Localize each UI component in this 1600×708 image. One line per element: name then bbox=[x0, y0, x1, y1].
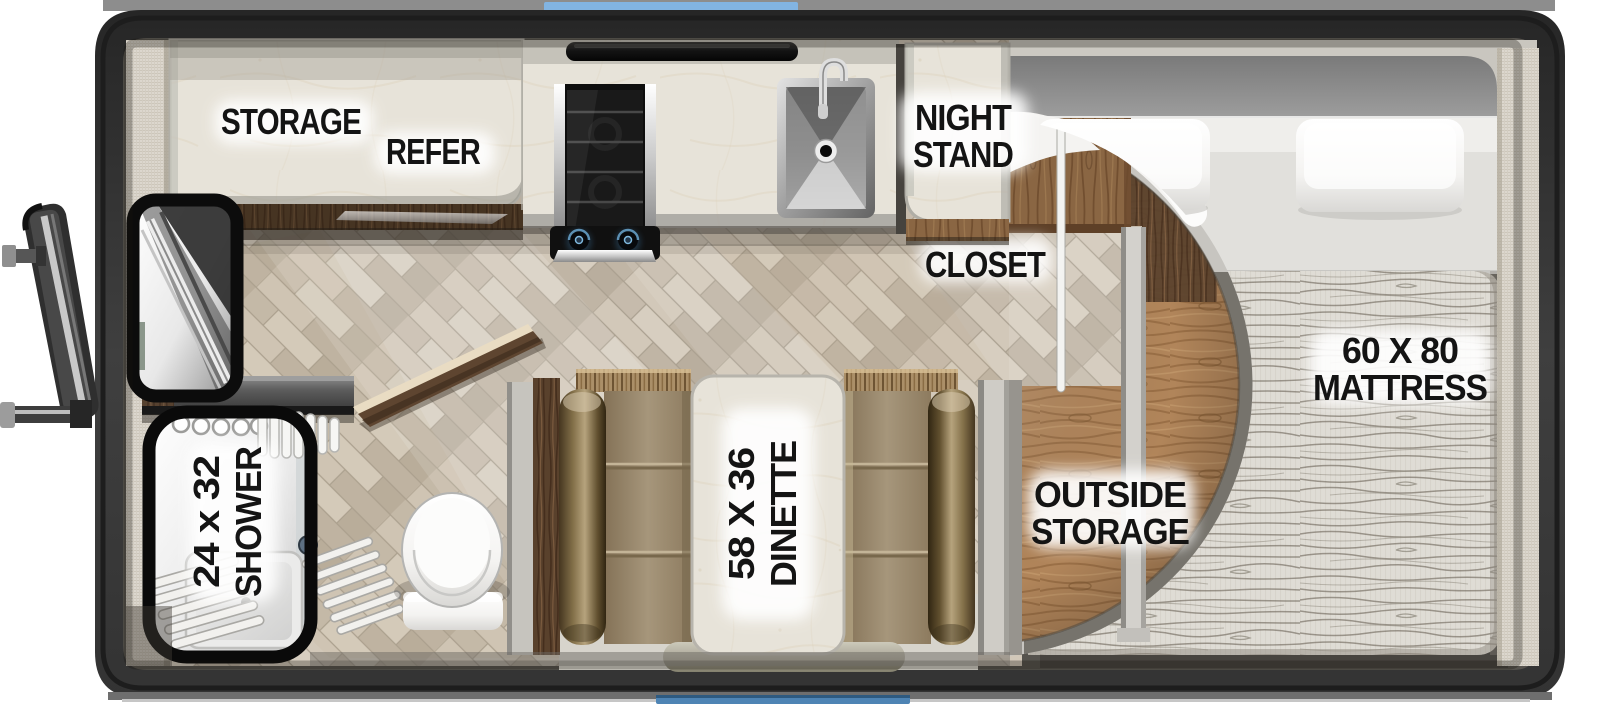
svg-text:24 x 32: 24 x 32 bbox=[186, 456, 227, 588]
svg-text:MATTRESS: MATTRESS bbox=[1313, 367, 1487, 408]
svg-text:STAND: STAND bbox=[913, 134, 1013, 175]
svg-text:58 X 36: 58 X 36 bbox=[721, 448, 762, 580]
svg-text:NIGHT: NIGHT bbox=[915, 97, 1012, 138]
svg-text:CLOSET: CLOSET bbox=[925, 244, 1046, 285]
svg-text:OUTSIDE: OUTSIDE bbox=[1034, 474, 1186, 515]
svg-text:STORAGE: STORAGE bbox=[1031, 511, 1189, 552]
svg-text:STORAGE: STORAGE bbox=[221, 101, 361, 142]
svg-text:REFER: REFER bbox=[386, 131, 481, 172]
svg-text:DINETTE: DINETTE bbox=[763, 441, 804, 587]
svg-text:60 X 80: 60 X 80 bbox=[1342, 330, 1458, 371]
svg-text:SHOWER: SHOWER bbox=[228, 446, 269, 597]
